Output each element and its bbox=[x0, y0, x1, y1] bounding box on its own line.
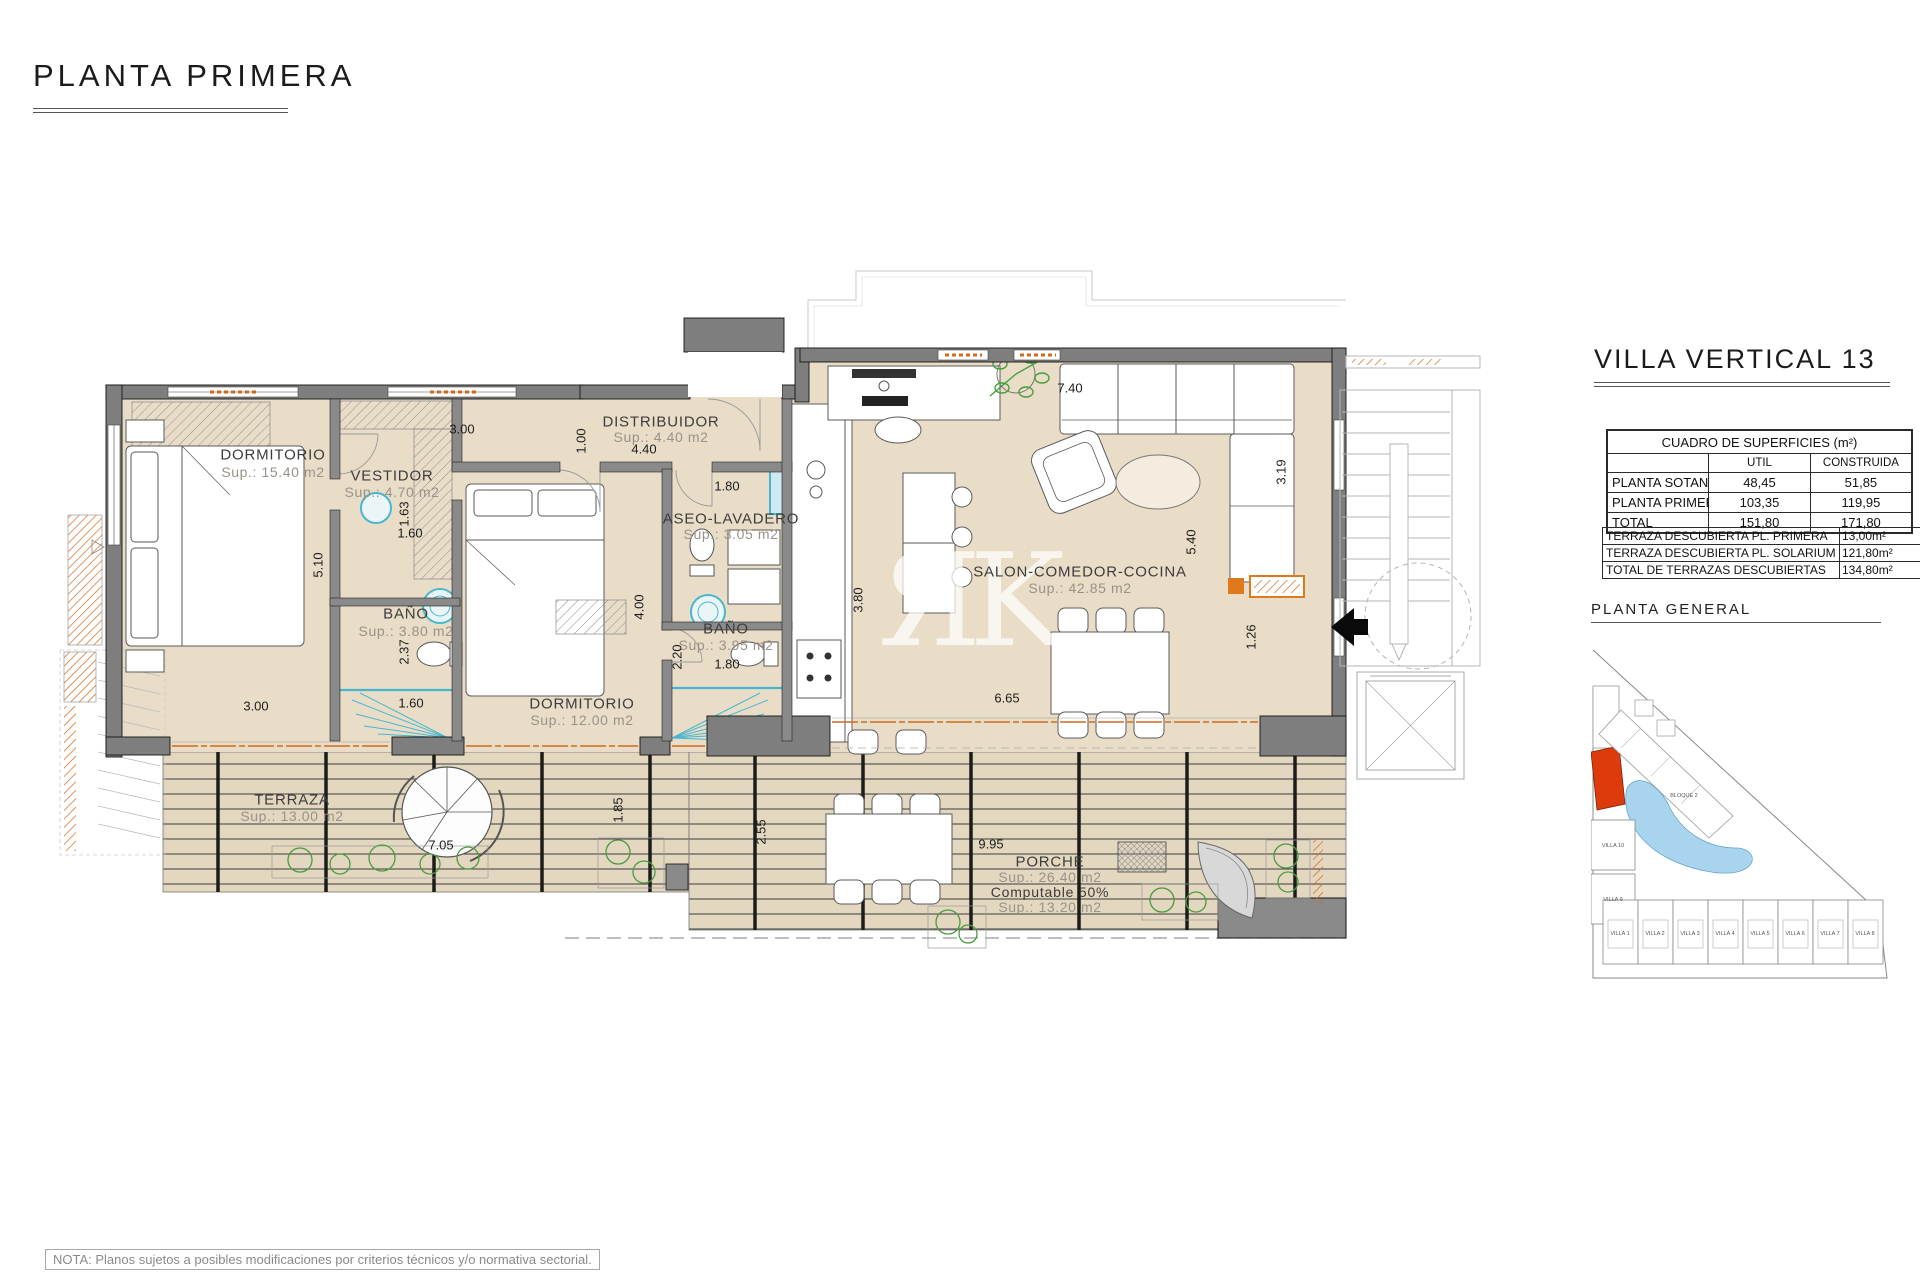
chaise bbox=[1230, 434, 1294, 582]
dimension-label: 4.00 bbox=[632, 594, 647, 619]
svg-text:VILLA 4: VILLA 4 bbox=[1715, 931, 1734, 937]
turning-circle bbox=[1365, 563, 1471, 669]
dimension-label: 1.80 bbox=[714, 657, 739, 672]
svg-text:VILLA 8: VILLA 8 bbox=[1855, 931, 1874, 937]
porche-sup2: Sup.: 13.20 m2 bbox=[998, 899, 1101, 915]
svg-text:VILLA 6: VILLA 6 bbox=[1785, 931, 1804, 937]
dimension-label: 2.20 bbox=[670, 644, 685, 669]
villa-13-highlight bbox=[1591, 746, 1625, 810]
room-sup-porche: Sup.: 26.40 m2 bbox=[998, 869, 1101, 885]
porche-orange-strip bbox=[1313, 838, 1323, 904]
stool-icon bbox=[952, 487, 972, 507]
col-util: UTIL bbox=[1709, 454, 1811, 473]
svg-text:VILLA 2: VILLA 2 bbox=[1645, 931, 1664, 937]
radiator bbox=[1228, 576, 1304, 597]
dimension-label: 3.19 bbox=[1274, 459, 1289, 484]
table-row: PLANTA SOTANO 48,45 51,85 bbox=[1607, 473, 1912, 493]
dimension-label: 1.26 bbox=[1244, 624, 1259, 649]
col-construida: CONSTRUIDA bbox=[1810, 454, 1912, 473]
villa-10-label: VILLA 10 bbox=[1602, 843, 1624, 849]
dimension-label: 5.40 bbox=[1184, 529, 1199, 554]
room-sup-dormitorio-2: Sup.: 12.00 m2 bbox=[530, 712, 633, 728]
bed-second-bedroom bbox=[466, 484, 626, 696]
tv-icon bbox=[852, 369, 916, 378]
kitchen-counter bbox=[790, 404, 852, 742]
note-box: NOTA: Planos sujetos a posibles modifica… bbox=[45, 1249, 600, 1270]
dimension-label: 1.60 bbox=[397, 526, 422, 541]
dimension-label: 2.37 bbox=[397, 639, 412, 664]
room-label-dormitorio-1: DORMITORIO bbox=[220, 447, 325, 464]
table-row: PLANTA PRIMERA 103,35 119,95 bbox=[1607, 493, 1912, 513]
terraces-table: TERRAZA DESCUBIERTA PL. PRIMERA 13,00m² … bbox=[1602, 527, 1920, 579]
room-sup-bano-2: Sup.: 3.95 m2 bbox=[679, 637, 774, 653]
dimension-label: 7.40 bbox=[1057, 381, 1082, 396]
dimension-label: 3.00 bbox=[449, 422, 474, 437]
dimension-label: 2.55 bbox=[754, 819, 769, 844]
stool-icon bbox=[952, 527, 972, 547]
wardrobe-hatch bbox=[556, 600, 626, 634]
villa-title: VILLA VERTICAL 13 bbox=[1594, 344, 1876, 375]
bloque-2-label: BLOQUE 2 bbox=[1670, 793, 1698, 799]
svg-text:VILLA 5: VILLA 5 bbox=[1750, 931, 1769, 937]
table-row: TOTAL DE TERRAZAS DESCUBIERTAS 134,80m² bbox=[1603, 562, 1920, 579]
dimension-label: 7.05 bbox=[428, 838, 453, 853]
room-sup-dormitorio-1: Sup.: 15.40 m2 bbox=[221, 464, 324, 480]
dimension-label: 1.63 bbox=[397, 501, 412, 526]
dryer-icon bbox=[728, 569, 780, 604]
deck-pillar bbox=[666, 864, 688, 890]
surfaces-table: CUADRO DE SUPERFICIES (m²) UTIL CONSTRUI… bbox=[1606, 429, 1913, 534]
room-label-dormitorio-2: DORMITORIO bbox=[529, 696, 634, 713]
floor-plan-drawing bbox=[0, 0, 1920, 1280]
dimension-label: 1.00 bbox=[574, 428, 589, 453]
stool-icon bbox=[952, 567, 972, 587]
room-label-distribuidor: DISTRIBUIDOR bbox=[602, 414, 719, 431]
title-underline bbox=[33, 108, 288, 113]
dimension-label: 1.60 bbox=[398, 696, 423, 711]
dimension-label: 5.10 bbox=[311, 552, 326, 577]
side-table bbox=[1118, 842, 1166, 872]
svg-text:VILLA 1: VILLA 1 bbox=[1610, 931, 1629, 937]
dimension-label: 3.80 bbox=[851, 587, 866, 612]
room-label-aseo: ASEO-LAVADERO bbox=[663, 511, 800, 528]
room-label-vestidor: VESTIDOR bbox=[350, 468, 433, 485]
site-plan-underline bbox=[1591, 622, 1881, 623]
room-sup-vestidor: Sup.: 4.70 m2 bbox=[345, 484, 440, 500]
room-sup-salon: Sup.: 42.85 m2 bbox=[1028, 580, 1131, 596]
villa-9-label: VILLA 9 bbox=[1603, 897, 1622, 903]
dimension-label: 3.00 bbox=[243, 699, 268, 714]
room-label-salon: SALON-COMEDOR-COCINA bbox=[973, 564, 1187, 581]
desk-chair-icon bbox=[875, 417, 921, 443]
room-sup-bano-1: Sup.: 3.80 m2 bbox=[359, 623, 454, 639]
table-row: TERRAZA DESCUBIERTA PL. PRIMERA 13,00m² bbox=[1603, 528, 1920, 545]
room-sup-aseo: Sup.: 3.05 m2 bbox=[684, 526, 779, 542]
svg-text:VILLA 7: VILLA 7 bbox=[1820, 931, 1839, 937]
chair-icon bbox=[1058, 608, 1088, 634]
room-sup-distribuidor: Sup.: 4.40 m2 bbox=[614, 429, 709, 445]
room-label-bano-1: BAÑO bbox=[383, 606, 429, 623]
dimension-label: 9.95 bbox=[978, 837, 1003, 852]
upper-floor-outline bbox=[808, 271, 1346, 348]
outdoor-dining-set bbox=[826, 794, 952, 904]
floor-plan-sheet: ЯK PLANTA PRIMERA DORMITORIO Sup.: 15.40… bbox=[0, 0, 1920, 1280]
room-label-porche: PORCHE bbox=[1016, 854, 1085, 871]
room-sup-terraza: Sup.: 13.00 m2 bbox=[240, 808, 343, 824]
site-plan-title: PLANTA GENERAL bbox=[1591, 601, 1751, 618]
villa-title-underline bbox=[1594, 382, 1890, 387]
room-label-bano-2: BAÑO bbox=[703, 621, 749, 638]
lift-shaft bbox=[1357, 672, 1464, 779]
room-label-terraza: TERRAZA bbox=[254, 792, 330, 809]
porche-computable: Computable 50% bbox=[991, 884, 1110, 900]
site-plan: VILLA 10 VILLA 9 BLOQUE 2 VILLA 1 VILLA … bbox=[1591, 648, 1920, 1008]
dimension-label: 1.85 bbox=[611, 797, 626, 822]
page-title: PLANTA PRIMERA bbox=[33, 58, 355, 94]
surfaces-table-title: CUADRO DE SUPERFICIES (m²) bbox=[1607, 430, 1912, 454]
dimension-label: 4.40 bbox=[631, 442, 656, 457]
dimension-label: 6.65 bbox=[994, 691, 1019, 706]
svg-text:VILLA 3: VILLA 3 bbox=[1680, 931, 1699, 937]
keyboard-icon bbox=[862, 396, 908, 406]
rug-oval bbox=[1116, 455, 1200, 509]
toilet-icon bbox=[417, 642, 451, 666]
dimension-label: 1.80 bbox=[714, 479, 739, 494]
table-row: TERRAZA DESCUBIERTA PL. SOLARIUM 121,80m… bbox=[1603, 545, 1920, 562]
